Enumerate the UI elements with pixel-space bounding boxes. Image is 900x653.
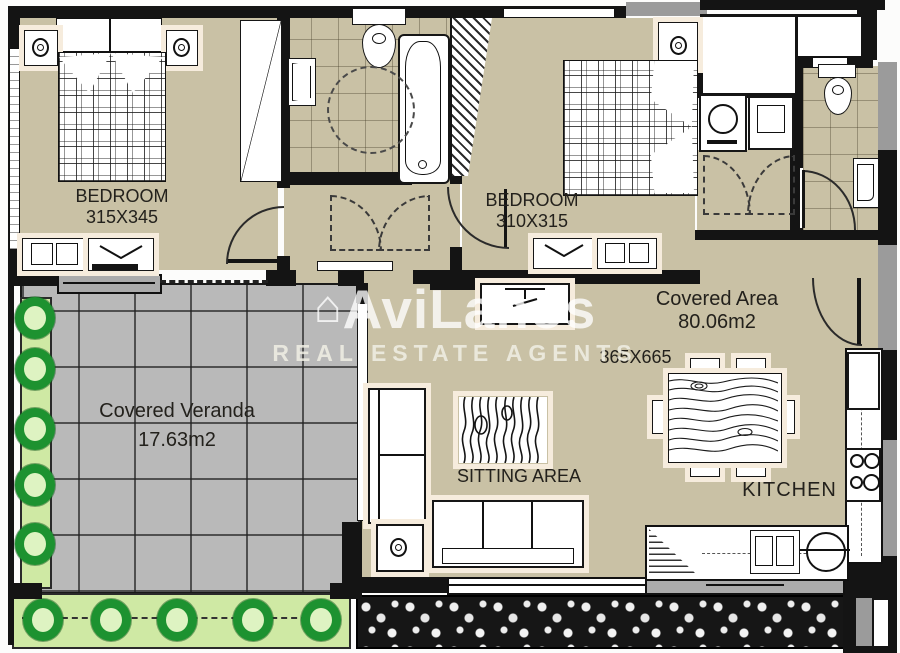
wall — [284, 172, 412, 185]
sliding-door — [447, 577, 647, 595]
chair — [736, 462, 766, 477]
door-leaf — [857, 278, 861, 344]
wall — [20, 270, 57, 286]
shower-circle — [327, 66, 415, 154]
plant-icon — [15, 348, 55, 390]
tv-stand — [533, 238, 595, 269]
covered-area-label: Covered Area 80.06m2 — [628, 288, 806, 334]
floor-plan: BEDROOM 315X345 BEDROOM 310X315 Covered … — [0, 0, 900, 653]
wall — [874, 600, 888, 646]
chair — [690, 358, 720, 373]
plant-icon — [15, 408, 55, 450]
stove — [845, 448, 881, 502]
bedroom1-label: BEDROOM 315X345 — [58, 186, 186, 227]
room-area: 17.63m2 — [88, 429, 266, 452]
wall — [795, 230, 883, 240]
plant-icon — [157, 599, 197, 641]
wc-basin — [853, 158, 879, 208]
room-area: 80.06m2 — [628, 311, 806, 334]
hall-shelf — [317, 261, 393, 271]
door-leaf — [802, 170, 805, 228]
chair — [780, 400, 795, 434]
kitchen-sink — [750, 530, 800, 574]
toilet — [818, 64, 856, 78]
round-sink-line — [800, 549, 850, 551]
room-dims: 310X315 — [468, 211, 596, 232]
wall — [626, 2, 707, 16]
plant-icon — [15, 523, 55, 565]
dining-table — [668, 373, 782, 463]
laundry-unit — [748, 96, 794, 150]
wall — [856, 598, 872, 646]
plant-icon — [15, 464, 55, 506]
sliding-door-track — [160, 280, 268, 283]
window — [503, 8, 615, 18]
wall — [8, 583, 42, 599]
wall — [878, 150, 897, 245]
fridge — [847, 352, 880, 410]
round-sink — [806, 532, 846, 572]
window — [56, 18, 162, 52]
bedroom2-label: BEDROOM 310X315 — [468, 190, 596, 231]
door-leaf — [228, 259, 282, 263]
window — [357, 303, 368, 521]
room-name: Covered Area — [628, 288, 806, 311]
veranda-label: Covered Veranda 17.63m2 — [88, 400, 266, 452]
wardrobe — [240, 20, 282, 182]
washing-machine — [699, 94, 747, 152]
rug — [458, 396, 548, 464]
room-name: BEDROOM — [58, 186, 186, 207]
armchair — [368, 388, 426, 524]
room-name: Covered Veranda — [88, 400, 266, 423]
sofa — [432, 500, 584, 568]
tv-icon — [430, 276, 480, 290]
wall — [356, 283, 368, 303]
lamp-icon — [173, 38, 190, 57]
wall — [695, 230, 795, 240]
wall — [345, 577, 447, 593]
window — [9, 48, 20, 250]
wall — [266, 270, 296, 286]
sitting-area-label: SITTING AREA — [448, 466, 590, 487]
plant-icon — [91, 599, 131, 641]
dresser — [597, 238, 657, 269]
room-name: BEDROOM — [468, 190, 596, 211]
lamp-icon — [32, 38, 49, 57]
tv-console — [480, 283, 570, 325]
gravel-strip — [356, 595, 847, 649]
dresser — [22, 238, 86, 271]
room-dims: 315X345 — [58, 207, 186, 228]
tv-icon — [92, 264, 138, 270]
covered-area-dims: 365X665 — [588, 347, 683, 368]
light-well — [700, 14, 798, 96]
toilet — [352, 8, 406, 25]
wall — [795, 68, 803, 168]
plant-icon — [23, 599, 63, 641]
plant-icon — [15, 297, 55, 339]
sliding-door — [57, 274, 162, 294]
chair — [736, 358, 766, 373]
chair — [690, 462, 720, 477]
chair — [652, 400, 667, 434]
lamp-icon — [670, 36, 687, 55]
lamp-icon — [390, 538, 407, 557]
plant-icon — [301, 599, 341, 641]
bathroom-sink — [288, 58, 316, 106]
kitchen-label: KITCHEN — [732, 479, 847, 502]
plant-icon — [233, 599, 273, 641]
